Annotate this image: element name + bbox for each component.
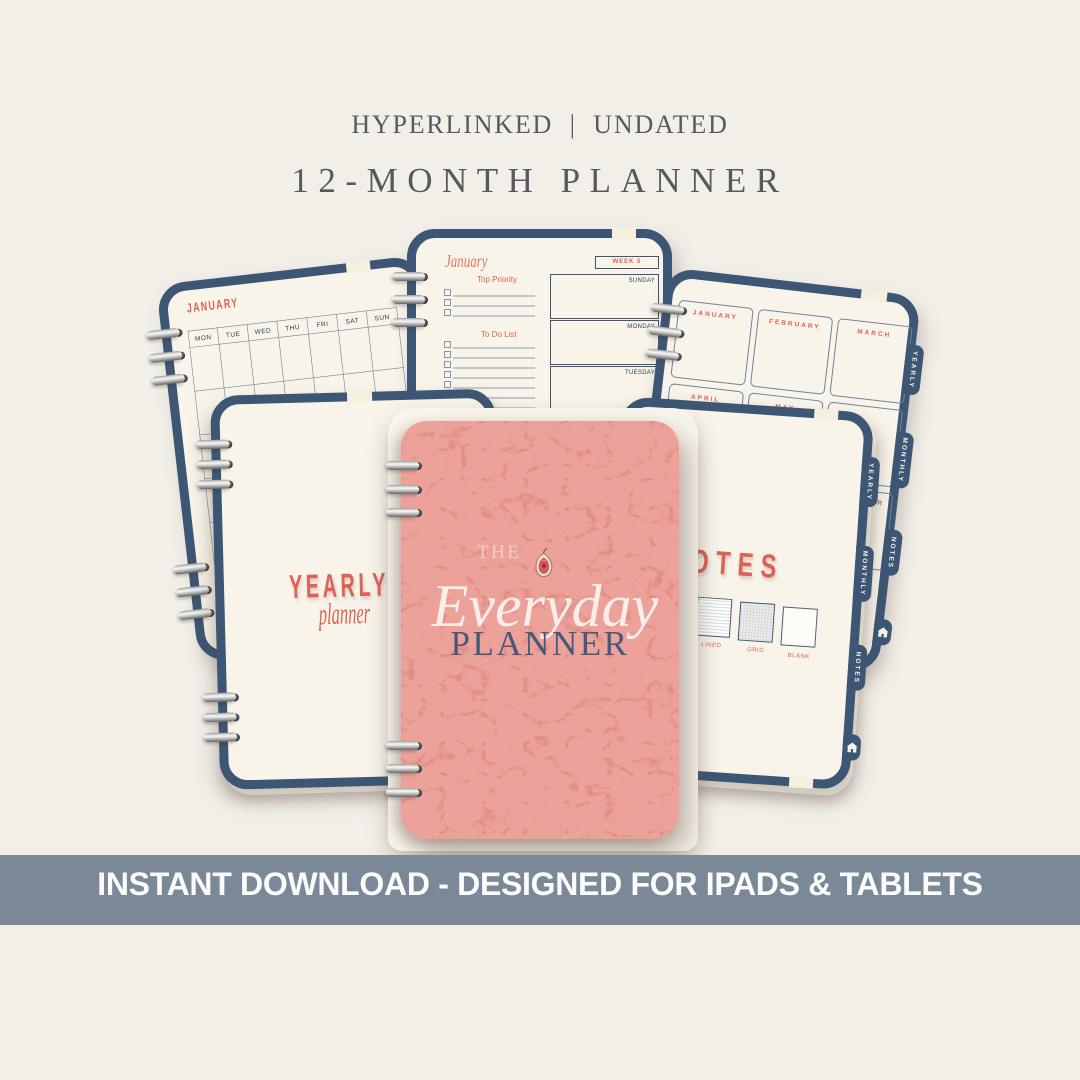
svg-text:SAT: SAT bbox=[345, 317, 359, 326]
svg-text:MON: MON bbox=[195, 334, 212, 343]
svg-text:SUN: SUN bbox=[374, 314, 390, 323]
svg-text:WED: WED bbox=[254, 327, 271, 336]
svg-text:FRI: FRI bbox=[316, 321, 329, 329]
svg-text:TUE: TUE bbox=[226, 331, 241, 340]
svg-text:THU: THU bbox=[285, 324, 301, 333]
